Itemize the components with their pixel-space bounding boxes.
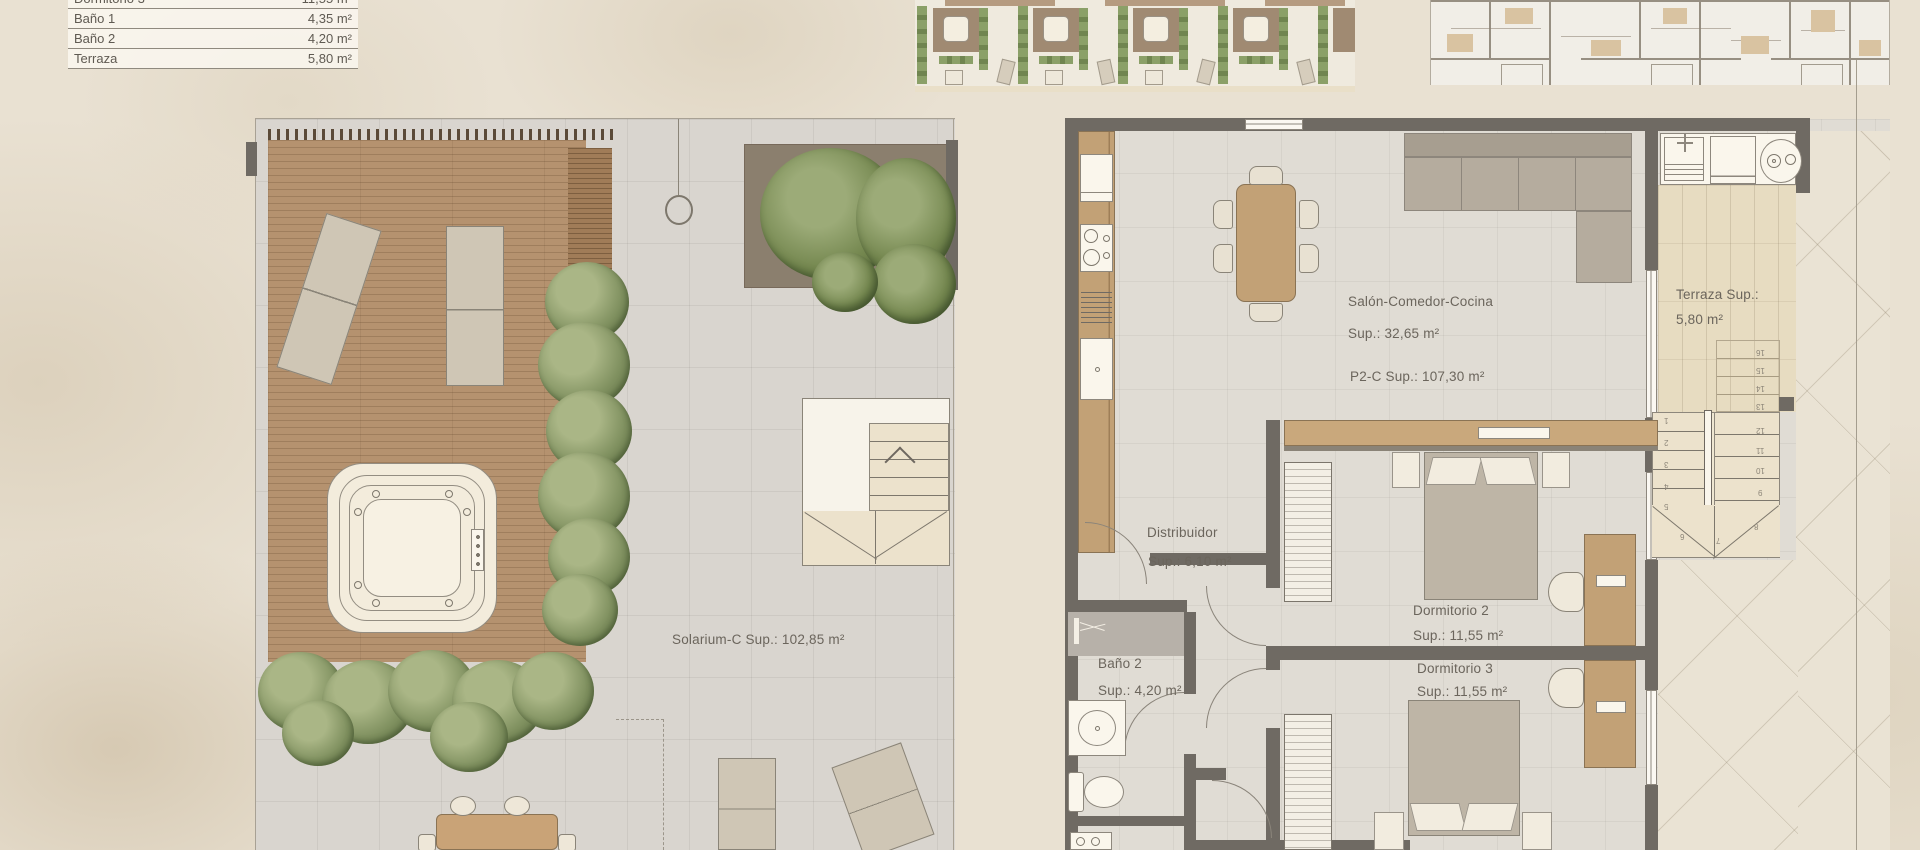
desk xyxy=(1584,534,1636,646)
living-room-label: Salón-Comedor-Cocina xyxy=(1348,294,1493,309)
stair-step-number: 7 xyxy=(1716,536,1720,544)
bedroom3-label: Dormitorio 3 xyxy=(1417,661,1493,676)
headboard-console xyxy=(1284,420,1658,446)
sun-lounger xyxy=(446,226,504,386)
bed xyxy=(1424,452,1538,600)
window xyxy=(1245,119,1303,130)
stair-step-number: 5 xyxy=(1664,502,1668,510)
outdoor-dining-table xyxy=(436,814,558,850)
nightstand xyxy=(1374,812,1404,850)
sofa-back xyxy=(1404,133,1632,157)
plan-border xyxy=(255,118,955,119)
stair-step-number: 12 xyxy=(1756,426,1765,434)
bathroom-area: Sup.: 4,20 m² xyxy=(1098,683,1182,698)
tree xyxy=(872,244,956,324)
kitchen-vent xyxy=(1081,292,1112,326)
stair-step-number: 9 xyxy=(1758,488,1762,496)
wall-segment xyxy=(1266,420,1280,588)
stool xyxy=(504,796,530,816)
tree xyxy=(812,252,878,312)
oven xyxy=(1080,338,1113,400)
table-row: Dormitorio 3 11,55 m² xyxy=(68,0,358,9)
stair-step-number: 4 xyxy=(1664,482,1668,490)
chair xyxy=(418,834,436,850)
room-label: Baño 2 xyxy=(74,31,115,46)
bathroom-sink xyxy=(1068,700,1126,756)
stair-step-number: 2 xyxy=(1664,438,1668,446)
wall-segment xyxy=(1065,816,1186,826)
site-plan-thumbnail xyxy=(915,0,1355,92)
wall-segment xyxy=(246,142,257,176)
chair xyxy=(1299,200,1319,229)
floor-plan-sheet: Dormitorio 3 11,55 m² Baño 1 4,35 m² Bañ… xyxy=(0,0,1920,850)
wall-segment xyxy=(1065,600,1187,612)
lot-boundary-line xyxy=(1856,60,1857,850)
nightstand xyxy=(1542,452,1570,488)
washer xyxy=(1070,832,1112,850)
stair-step-number: 6 xyxy=(1680,532,1684,540)
stair-step-number: 1 xyxy=(1664,416,1668,424)
room-label: Terraza xyxy=(74,51,117,66)
bedroom2-label: Dormitorio 2 xyxy=(1413,603,1489,618)
jacuzzi xyxy=(327,463,497,633)
fixture-stem xyxy=(678,119,679,195)
fridge xyxy=(1080,154,1113,202)
solarium-stairs xyxy=(802,398,950,566)
hall-label: Distribuidor xyxy=(1147,525,1218,540)
outdoor-sink xyxy=(1664,137,1704,181)
outdoor-appliance xyxy=(1710,136,1756,184)
chair xyxy=(1299,244,1319,273)
bedroom2-area: Sup.: 11,55 m² xyxy=(1413,628,1503,643)
room-label: Dormitorio 3 xyxy=(74,0,145,6)
stair-step-number: 15 xyxy=(1756,366,1765,374)
terrace-area: 5,80 m² xyxy=(1676,312,1723,327)
wall-segment xyxy=(1779,397,1794,411)
wall-segment xyxy=(1184,612,1196,694)
deck-edge-hatching xyxy=(268,129,614,140)
shower xyxy=(1068,612,1184,656)
wall-segment xyxy=(1184,754,1196,850)
sun-lounger xyxy=(718,758,776,850)
desk xyxy=(1584,660,1636,768)
table-row: Terraza 5,80 m² xyxy=(68,49,358,69)
bathroom-label: Baño 2 xyxy=(1098,656,1142,671)
wall-segment xyxy=(1645,560,1658,690)
stair-step-number: 10 xyxy=(1756,466,1765,474)
adjacent-void-area xyxy=(1658,560,1798,850)
solarium-area-label: Solarium-C Sup.: 102,85 m² xyxy=(672,632,845,647)
desk-chair xyxy=(1548,572,1584,612)
desk-chair xyxy=(1548,668,1584,708)
window xyxy=(1646,690,1657,785)
sofa-seats xyxy=(1404,157,1632,211)
area-table: Dormitorio 3 11,55 m² Baño 1 4,35 m² Bañ… xyxy=(68,0,358,69)
adjacent-void-area xyxy=(1796,131,1890,850)
wall-segment xyxy=(1196,768,1226,780)
chair xyxy=(1249,166,1283,185)
hanging-fixture-icon xyxy=(665,195,693,225)
cooktop xyxy=(1080,224,1113,272)
room-area: 5,80 m² xyxy=(308,51,352,66)
wardrobe xyxy=(1284,714,1332,850)
stair-step-number: 14 xyxy=(1756,384,1765,392)
wall-segment xyxy=(1645,785,1658,850)
console-vent xyxy=(1478,427,1550,439)
terrace-label: Terraza Sup.: xyxy=(1676,287,1759,302)
room-area: 4,35 m² xyxy=(308,11,352,26)
bedroom-divider-wall xyxy=(1268,646,1658,660)
boundary-dashed-line xyxy=(663,719,664,850)
stair-step-number: 8 xyxy=(1754,522,1758,530)
building-plan-thumbnail xyxy=(1430,0,1890,85)
outdoor-grill xyxy=(1760,139,1802,183)
chair xyxy=(558,834,576,850)
chair xyxy=(1213,200,1233,229)
stair-step-number: 13 xyxy=(1756,402,1765,410)
living-room-area: Sup.: 32,65 m² xyxy=(1348,326,1439,341)
chair xyxy=(1249,303,1283,322)
hall-area: Sup.: 6,10 m² xyxy=(1148,554,1232,569)
bed xyxy=(1408,700,1520,836)
dining-table xyxy=(1236,184,1296,302)
wardrobe xyxy=(1284,462,1332,602)
room-area: 11,55 m² xyxy=(302,0,352,6)
stair-step-number: 3 xyxy=(1664,460,1668,468)
wall-segment xyxy=(1065,118,1810,131)
plan-border xyxy=(255,118,256,850)
wall-segment xyxy=(1645,118,1658,270)
table-row: Baño 2 4,20 m² xyxy=(68,29,358,49)
stair-step-number: 11 xyxy=(1756,446,1764,454)
room-label: Baño 1 xyxy=(74,11,115,26)
nightstand xyxy=(1392,452,1420,488)
jacuzzi-control-panel xyxy=(471,529,484,571)
bedroom3-area: Sup.: 11,55 m² xyxy=(1417,684,1507,699)
nightstand xyxy=(1522,812,1552,850)
apartment-total-area: P2-C Sup.: 107,30 m² xyxy=(1350,369,1485,384)
table-row: Baño 1 4,35 m² xyxy=(68,9,358,29)
chair xyxy=(1213,244,1233,273)
boundary-dashed-line xyxy=(616,719,664,720)
room-area: 4,20 m² xyxy=(308,31,352,46)
sofa-chaise xyxy=(1576,211,1632,283)
wall-segment xyxy=(1284,446,1658,451)
stool xyxy=(450,796,476,816)
stair-step-number: 16 xyxy=(1756,348,1765,356)
